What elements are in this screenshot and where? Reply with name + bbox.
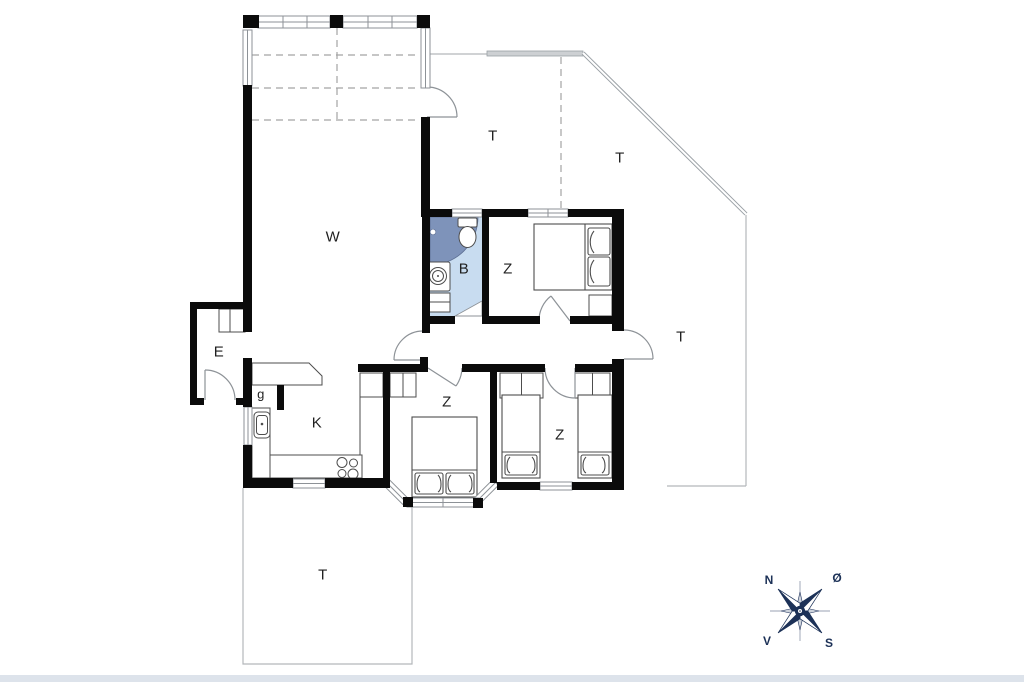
window-living-east bbox=[421, 28, 430, 88]
single-bed-south-right bbox=[578, 395, 612, 478]
double-bed-southwest bbox=[412, 417, 477, 497]
window-bedroom-north bbox=[528, 209, 568, 217]
window-bathroom bbox=[452, 209, 482, 217]
room-label-terrace-east: T bbox=[676, 329, 686, 346]
room-label-bedroom-south: Z bbox=[555, 427, 565, 444]
compass-label-south: S bbox=[825, 636, 833, 650]
door-living-to-terrace-north bbox=[427, 87, 457, 117]
wardrobe-bedroom-south-right bbox=[575, 373, 610, 398]
compass-label-north: N bbox=[765, 573, 774, 587]
wardrobe-bedroom-southwest bbox=[390, 373, 416, 397]
double-bed-north bbox=[534, 224, 612, 290]
bottom-band bbox=[0, 675, 1024, 682]
room-label-terrace-north: T bbox=[488, 128, 498, 145]
floor-plan: W B Z Z Z E K g T T T T N Ø S V bbox=[0, 0, 1024, 682]
door-bedroom-southwest bbox=[428, 368, 462, 386]
single-bed-south-left bbox=[502, 395, 540, 478]
door-bedroom-south bbox=[545, 368, 575, 398]
window-living-west bbox=[243, 30, 252, 86]
room-label-terrace-northeast: T bbox=[615, 150, 625, 167]
kitchen-tall-cabinet bbox=[360, 373, 383, 397]
kitchen-counter-top bbox=[252, 363, 322, 385]
kitchen-sink bbox=[254, 412, 270, 438]
bay-window-front bbox=[407, 498, 479, 507]
window-kitchen bbox=[293, 479, 325, 488]
window-living-top-right bbox=[343, 16, 417, 28]
floor-plan-drawing bbox=[0, 0, 1024, 682]
door-bedroom-north bbox=[539, 296, 570, 321]
door-hall-to-terrace-east bbox=[624, 330, 653, 359]
door-entrance bbox=[205, 370, 235, 400]
compass-label-west: V bbox=[763, 634, 771, 648]
room-label-bathroom: B bbox=[459, 261, 470, 278]
compass-label-east: Ø bbox=[832, 571, 841, 585]
nightstand bbox=[589, 295, 612, 316]
entrance-closet bbox=[219, 309, 245, 332]
room-label-kitchen: K bbox=[312, 415, 323, 432]
bathroom-area bbox=[426, 217, 482, 316]
terrace-diagonal-edge bbox=[583, 53, 746, 214]
room-label-bedroom-north: Z bbox=[503, 261, 513, 278]
terrace-rail bbox=[487, 51, 583, 56]
door-living-to-hall bbox=[394, 331, 423, 360]
shower-drain bbox=[430, 229, 436, 235]
window-hall-west bbox=[244, 407, 252, 445]
room-label-bedroom-southwest: Z bbox=[442, 394, 452, 411]
wardrobe-bedroom-south-left bbox=[500, 373, 543, 398]
toilet bbox=[458, 218, 477, 248]
room-label-entrance: E bbox=[214, 344, 225, 361]
room-label-living: W bbox=[326, 229, 341, 246]
room-label-hall: g bbox=[257, 387, 265, 402]
room-label-terrace-south: T bbox=[318, 567, 328, 584]
window-bedroom-south bbox=[540, 482, 572, 490]
window-living-top-left bbox=[258, 16, 330, 28]
